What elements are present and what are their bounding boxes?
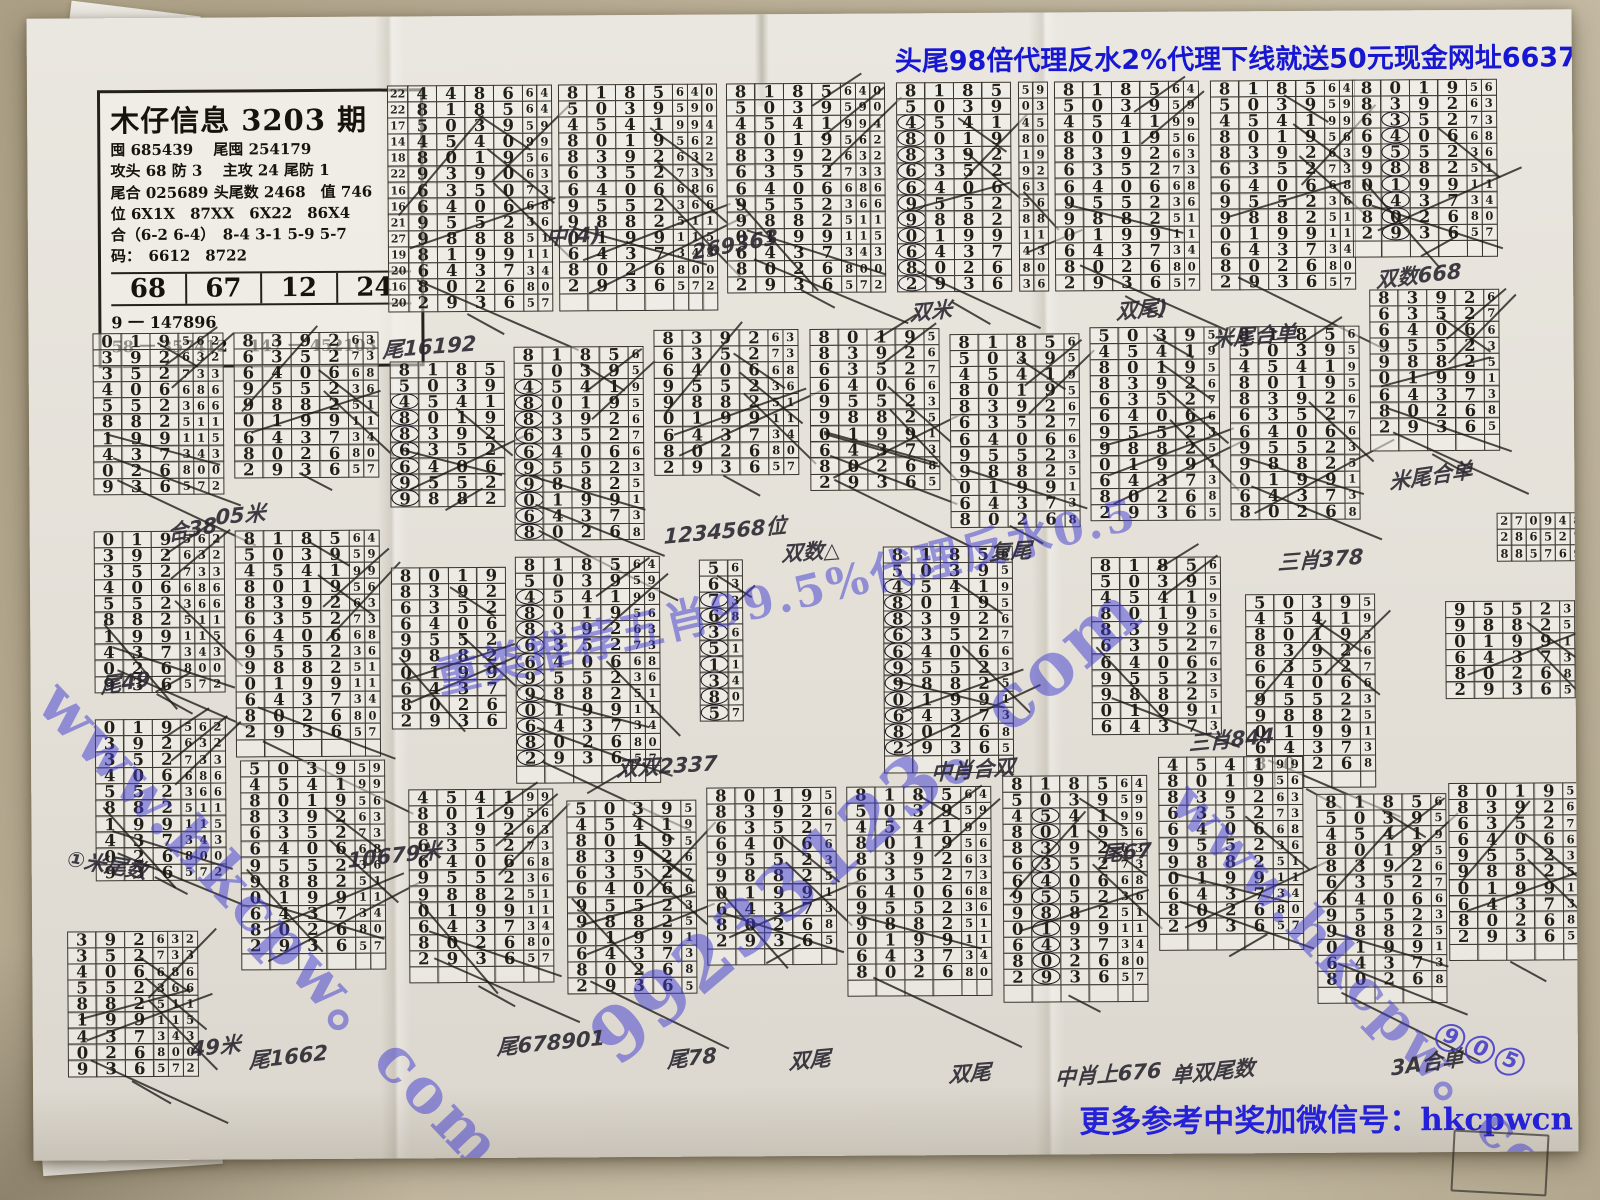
digit-cell: 6 bbox=[644, 604, 660, 622]
digit-cell: 3 bbox=[998, 706, 1014, 724]
digit-cell: 1 bbox=[363, 412, 379, 430]
digit-cell bbox=[1535, 943, 1565, 961]
digit-cell: 3 bbox=[537, 165, 553, 183]
digit-cell: 7 bbox=[538, 949, 554, 967]
digit-cell: 5 bbox=[924, 473, 940, 491]
digit-cell: 1 bbox=[209, 611, 225, 629]
grid-row: 9882 bbox=[391, 491, 506, 508]
handwritten-stamp: 中(4) bbox=[545, 218, 601, 251]
digit-cell: 3 bbox=[681, 944, 697, 962]
digit-cell: 7 bbox=[681, 864, 697, 882]
number-grid-block: 8185650395454198019583926635276406695523… bbox=[1092, 557, 1222, 735]
digit-cell: 0 bbox=[876, 963, 906, 981]
table-pen-marks bbox=[1450, 1130, 1549, 1197]
digit-cell: 5 bbox=[820, 786, 836, 804]
digit-cell: 8 bbox=[644, 652, 660, 670]
digit-cell bbox=[1353, 240, 1383, 258]
digit-cell: 2 bbox=[1303, 754, 1333, 772]
digit-cell: 6 bbox=[1331, 754, 1361, 772]
digit-cell: 9 bbox=[628, 378, 644, 396]
digit-cell: 4 bbox=[1287, 884, 1303, 902]
digit-cell: 3 bbox=[362, 331, 378, 349]
digit-cell: 3 bbox=[1149, 717, 1179, 735]
grid-row bbox=[1450, 944, 1578, 961]
digit-cell: 0 bbox=[1346, 970, 1376, 988]
digit-cell: 3 bbox=[537, 181, 553, 199]
digit-cell: 0 bbox=[702, 260, 718, 278]
grid-row bbox=[848, 980, 992, 997]
digit-cell: 5 bbox=[1064, 462, 1080, 480]
digit-cell: 2 bbox=[559, 277, 589, 295]
digit-cell: 3 bbox=[369, 824, 385, 842]
digit-cell: 1 bbox=[1344, 470, 1360, 488]
digit-cell: 2 bbox=[707, 932, 737, 950]
digit-cell: 2 bbox=[207, 332, 223, 350]
digit-cell: 9 bbox=[644, 588, 660, 606]
digit-cell: 6 bbox=[321, 723, 351, 741]
digit-cell: 3 bbox=[96, 1060, 126, 1078]
digit-cell: 9 bbox=[1381, 224, 1411, 242]
digit-cell: 3 bbox=[573, 749, 603, 767]
digit-cell: 6 bbox=[209, 578, 225, 596]
digit-cell: 3 bbox=[1112, 274, 1142, 292]
digit-cell: 9 bbox=[537, 788, 553, 806]
digit-cell bbox=[1563, 943, 1578, 961]
digit-cell: 3 bbox=[1360, 738, 1376, 756]
digit-cell: 2 bbox=[654, 458, 684, 476]
digit-cell: 8 bbox=[1481, 127, 1497, 145]
digit-cell: 6 bbox=[1430, 793, 1446, 811]
digit-cell: 6 bbox=[1455, 417, 1485, 435]
digit-cell: 6 bbox=[1483, 321, 1499, 339]
digit-cell bbox=[1089, 984, 1119, 1002]
digit-cell: 6 bbox=[727, 559, 743, 577]
digit-cell bbox=[616, 293, 646, 311]
digit-cell: 5 bbox=[1204, 439, 1220, 457]
digit-cell: 0 bbox=[976, 963, 992, 981]
digit-cell: 4 bbox=[1184, 241, 1200, 259]
digit-cell: 5 bbox=[1206, 685, 1222, 703]
digit-cell: 2 bbox=[884, 739, 914, 757]
handwritten-stamp: 复尾 bbox=[989, 534, 1032, 567]
digit-cell: 8 bbox=[1183, 177, 1199, 195]
digit-cell bbox=[876, 979, 906, 997]
grid-row: 293657 bbox=[1212, 274, 1356, 291]
digit-cell: 1 bbox=[210, 799, 226, 817]
handwritten-stamp: 双数△ bbox=[781, 534, 840, 569]
digit-cell: 7 bbox=[997, 626, 1013, 644]
digit-cell: 2 bbox=[476, 489, 506, 507]
digit-cell: 3 bbox=[1204, 423, 1220, 441]
grid-row: 57 bbox=[701, 705, 744, 721]
grid-row: 293657 bbox=[655, 459, 799, 476]
digit-cell: 2 bbox=[241, 937, 271, 955]
digit-cell: 1 bbox=[728, 656, 744, 674]
digit-cell: 8 bbox=[847, 963, 877, 981]
digit-cell: 2 bbox=[391, 712, 421, 730]
info-line: 码： 6612 8722 bbox=[111, 245, 411, 268]
digit-cell: 6 bbox=[182, 963, 198, 981]
info-number: 67 bbox=[187, 273, 263, 303]
grid-row: 2936 bbox=[393, 713, 508, 730]
digit-cell: 3 bbox=[364, 594, 380, 612]
digit-cell bbox=[321, 739, 351, 757]
digit-cell: 6 bbox=[153, 863, 183, 881]
digit-cell: 20 bbox=[388, 262, 410, 280]
digit-cell: 6 bbox=[1531, 681, 1561, 699]
digit-cell: 8 bbox=[1287, 820, 1303, 838]
digit-cell: 1 bbox=[628, 491, 644, 509]
digit-cell: 3 bbox=[293, 723, 323, 741]
digit-cell: 9 bbox=[1131, 807, 1147, 825]
digit-cell: 2 bbox=[209, 718, 225, 736]
info-line: 囤 685439 尾囤 254179 bbox=[110, 138, 410, 161]
digit-cell: 6 bbox=[362, 380, 378, 398]
digit-cell: 2 bbox=[869, 130, 885, 148]
grid-row: 2936 bbox=[898, 276, 1013, 293]
digit-cell: 2 bbox=[182, 930, 198, 948]
handwritten-stamp: 米尾合单 bbox=[1212, 317, 1297, 354]
digit-cell bbox=[1398, 434, 1428, 452]
digit-cell: 5 bbox=[1430, 809, 1446, 827]
digit-cell: 5 bbox=[997, 594, 1013, 612]
digit-cell: 3 bbox=[298, 937, 328, 955]
digit-cell: 6 bbox=[681, 880, 697, 898]
digit-cell: 1 bbox=[644, 700, 660, 718]
digit-cell: 3 bbox=[209, 643, 225, 661]
digit-cell: 1 bbox=[208, 413, 224, 431]
handwritten-stamp: 尾67 bbox=[1101, 834, 1152, 868]
digit-cell: 1 bbox=[1287, 868, 1303, 886]
number-grid-block: 8019583926635276406695523988250199164373… bbox=[1449, 783, 1578, 961]
digit-cell: 5 bbox=[821, 867, 837, 885]
digit-cell bbox=[1245, 933, 1275, 951]
digit-cell: 7 bbox=[628, 426, 644, 444]
digit-cell: 9 bbox=[1119, 504, 1149, 522]
grid-row: 29365 bbox=[568, 978, 697, 995]
digit-cell: 6 bbox=[1481, 78, 1497, 96]
digit-cell: 7 bbox=[1340, 273, 1356, 291]
digit-cell: 3 bbox=[1064, 446, 1080, 464]
digit-cell: 9 bbox=[644, 572, 660, 590]
digit-cell: 8 bbox=[998, 723, 1014, 741]
digit-cell: 8 bbox=[782, 361, 798, 379]
digit-cell: 2 bbox=[702, 148, 718, 166]
number-grid-block: 8185645039594541998019568392636352736406… bbox=[516, 557, 661, 783]
digit-cell: 27 bbox=[387, 230, 409, 248]
digit-cell: 4 bbox=[975, 785, 991, 803]
digit-cell: 2 bbox=[409, 950, 439, 968]
digit-cell: 2 bbox=[1055, 274, 1085, 292]
number-grid-block: 56637368365111348057 bbox=[700, 560, 744, 721]
digit-cell: 9 bbox=[1131, 791, 1147, 809]
digit-cell: 19 bbox=[388, 246, 410, 264]
digit-cell bbox=[538, 965, 554, 983]
digit-cell: 6 bbox=[645, 277, 675, 295]
number-grid-block: 8185645039594541998019568392636352736406… bbox=[1055, 82, 1200, 292]
digit-cell: 4 bbox=[1481, 191, 1497, 209]
digit-cell: 8 bbox=[1431, 970, 1447, 988]
digit-cell: 3 bbox=[1204, 471, 1220, 489]
digit-cell: 8 bbox=[950, 511, 980, 529]
number-grid-block: 8185650395454198019583926635276406695523… bbox=[1230, 327, 1360, 521]
digit-cell: 0 bbox=[543, 523, 573, 541]
digit-cell: 9 bbox=[997, 578, 1013, 596]
pen-stroke bbox=[952, 302, 991, 326]
digit-cell: 2 bbox=[904, 963, 934, 981]
digit-cell: 3 bbox=[616, 277, 646, 295]
digit-cell: 6 bbox=[1344, 390, 1360, 408]
digit-cell: 3 bbox=[1481, 111, 1497, 129]
digit-cell bbox=[1132, 984, 1148, 1002]
digit-cell: 0 bbox=[645, 733, 661, 751]
digit-cell bbox=[1506, 943, 1536, 961]
digit-cell: 3 bbox=[681, 896, 697, 914]
digit-cell bbox=[264, 739, 294, 757]
digit-cell bbox=[293, 739, 323, 757]
handwritten-stamp: 米尾合单 bbox=[1389, 454, 1473, 496]
digit-cell: 9 bbox=[264, 723, 294, 741]
digit-cell: 6 bbox=[702, 180, 718, 198]
digit-cell: 3 bbox=[975, 866, 991, 884]
digit-cell: 16 bbox=[387, 198, 409, 216]
digit-cell bbox=[516, 766, 546, 784]
digit-cell bbox=[821, 947, 837, 965]
digit-cell: 6 bbox=[537, 149, 553, 167]
digit-cell: 4 bbox=[364, 690, 380, 708]
number-grid-block: 3926323527334066865523668825111991154373… bbox=[68, 932, 199, 1078]
digit-cell: 2 bbox=[1449, 927, 1479, 945]
digit-cell: 2 bbox=[727, 276, 757, 294]
handwritten-stamp: 尾678901 bbox=[497, 1022, 606, 1062]
number-grid-block: 8392636352736406689552369882510199116437… bbox=[234, 333, 379, 479]
digit-cell: 3 bbox=[1563, 846, 1579, 864]
digit-cell: 3 bbox=[867, 473, 897, 491]
digit-cell: 7 bbox=[1132, 968, 1148, 986]
digit-cell bbox=[735, 948, 765, 966]
digit-cell: 2 bbox=[516, 749, 546, 767]
digit-cell bbox=[1381, 240, 1411, 258]
digit-cell: 6 bbox=[1562, 798, 1578, 816]
digit-cell: 8 bbox=[1345, 502, 1361, 520]
digit-cell: 0 bbox=[1340, 256, 1356, 274]
digit-cell: 0 bbox=[1481, 207, 1497, 225]
info-footer: 9 一 147896 bbox=[111, 307, 411, 333]
info-number-row: 68 67 12 24 bbox=[111, 270, 411, 306]
digit-cell bbox=[1456, 433, 1486, 451]
digit-cell: 3 bbox=[782, 345, 798, 363]
digit-cell bbox=[327, 953, 357, 971]
digit-cell: 9 bbox=[437, 950, 467, 968]
digit-cell: 2 bbox=[1033, 162, 1049, 180]
digit-cell: 6 bbox=[1316, 502, 1346, 520]
digit-cell: 9 bbox=[1064, 365, 1080, 383]
digit-cell: 6 bbox=[1287, 836, 1303, 854]
digit-cell: 3 bbox=[924, 441, 940, 459]
info-line: 攻头 68 防 3 主攻 24 尾防 1 bbox=[110, 160, 410, 183]
digit-cell: 6 bbox=[364, 642, 380, 660]
digit-cell: 1 bbox=[369, 888, 385, 906]
number-grid-block: 0195623926323527334066865523668825111991… bbox=[93, 334, 224, 496]
digit-cell: 8 bbox=[1230, 503, 1260, 521]
digit-cell: 6 bbox=[1481, 143, 1497, 161]
digit-cell bbox=[1438, 240, 1468, 258]
number-grid-block: 8019568392636352736406689552369882510199… bbox=[1353, 80, 1498, 258]
digit-cell: 0 bbox=[728, 688, 744, 706]
digit-cell: 6 bbox=[1483, 288, 1499, 306]
digit-cell: 6 bbox=[1036, 510, 1066, 528]
digit-cell bbox=[365, 739, 381, 757]
digit-cell bbox=[1484, 433, 1500, 451]
digit-cell: 9 bbox=[67, 1060, 97, 1078]
digit-cell: 5 bbox=[1360, 706, 1376, 724]
digit-cell: 1 bbox=[1033, 226, 1049, 244]
digit-cell: 7 bbox=[1205, 637, 1221, 655]
digit-cell: 7 bbox=[1360, 658, 1376, 676]
digit-cell bbox=[1374, 986, 1404, 1004]
digit-cell: 7 bbox=[1204, 390, 1220, 408]
digit-cell: 6 bbox=[1205, 556, 1221, 574]
digit-cell bbox=[298, 953, 328, 971]
digit-cell: 1 bbox=[821, 883, 837, 901]
digit-cell: 7 bbox=[924, 360, 940, 378]
digit-cell: 5 bbox=[1064, 381, 1080, 399]
digit-cell: 0 bbox=[701, 99, 717, 117]
digit-cell: 2 bbox=[208, 477, 224, 495]
handwritten-stamp: 49米 bbox=[191, 1028, 241, 1064]
digit-cell: 5 bbox=[681, 831, 697, 849]
digit-cell: 4 bbox=[644, 717, 660, 735]
digit-cell: 6 bbox=[320, 460, 350, 478]
digit-cell: 3 bbox=[1033, 178, 1049, 196]
digit-cell: 6 bbox=[1438, 224, 1468, 242]
digit-cell: 8 bbox=[821, 915, 837, 933]
digit-cell: 1 bbox=[369, 872, 385, 890]
digit-cell: 1 bbox=[976, 914, 992, 932]
digit-cell: 3 bbox=[1216, 917, 1246, 935]
digit-cell: 6 bbox=[1033, 274, 1049, 292]
digit-cell: 9 bbox=[364, 561, 380, 579]
digit-cell: 5 bbox=[681, 976, 697, 994]
digit-cell: 5 bbox=[681, 912, 697, 930]
digit-cell: 8 bbox=[537, 853, 553, 871]
digit-cell: 8 bbox=[727, 607, 743, 625]
grid-row: 29365 bbox=[811, 474, 940, 491]
digit-cell: 9 bbox=[596, 977, 626, 995]
digit-cell: 0 bbox=[869, 82, 885, 100]
digit-cell: 8 bbox=[447, 489, 477, 507]
digit-cell: 1 bbox=[681, 928, 697, 946]
digit-cell: 2 bbox=[1007, 510, 1037, 528]
digit-cell: 3 bbox=[784, 276, 814, 294]
digit-cell: 6 bbox=[727, 623, 743, 641]
digit-cell: 5 bbox=[998, 674, 1014, 692]
digit-cell: 6 bbox=[1563, 830, 1579, 848]
digit-cell: 2 bbox=[1090, 504, 1120, 522]
digit-cell: 7 bbox=[1483, 304, 1499, 322]
digit-cell: 5 bbox=[1032, 113, 1048, 131]
digit-cell: 4 bbox=[701, 115, 717, 133]
digit-cell: 9 bbox=[363, 545, 379, 563]
digit-cell: 5 bbox=[1563, 927, 1578, 945]
handwritten-stamp: 尾49 bbox=[100, 663, 151, 700]
digit-cell: 1 bbox=[998, 690, 1014, 708]
digit-cell: 6 bbox=[1204, 374, 1220, 392]
digit-cell: 3 bbox=[1344, 438, 1360, 456]
digit-cell: 6 bbox=[537, 869, 553, 887]
digit-cell bbox=[1449, 944, 1479, 962]
grid-row: 293657 bbox=[235, 461, 379, 478]
number-grid-block: 4541998019568392636352736406689552369882… bbox=[1159, 757, 1304, 951]
digit-cell: 2 bbox=[1003, 969, 1033, 987]
digit-cell: 7 bbox=[1184, 273, 1200, 291]
digit-cell: 6 bbox=[782, 377, 798, 395]
digit-cell: 6 bbox=[182, 979, 198, 997]
digit-cell: 4 bbox=[536, 100, 552, 118]
digit-cell: 3 bbox=[1060, 968, 1090, 986]
number-grid-block: 8185640503959045419948019562839263263527… bbox=[559, 85, 719, 311]
info-line: 合（6-2 6-4） 8-4 3-1 5-9 5-7 bbox=[111, 224, 411, 247]
digit-cell: 2 bbox=[210, 734, 226, 752]
digit-cell: 4 bbox=[1183, 80, 1199, 98]
number-grid-block: 270948028652768857690 bbox=[1498, 513, 1579, 562]
digit-cell: 2 bbox=[870, 147, 886, 165]
digit-cell: 8 bbox=[1033, 210, 1049, 228]
digit-cell: 7 bbox=[537, 294, 553, 312]
info-line: 尾合 025689 头尾数 2468 值 746 bbox=[111, 181, 411, 204]
digit-cell: 3 bbox=[954, 275, 984, 293]
grid-row bbox=[237, 740, 381, 757]
digit-cell: 3 bbox=[537, 820, 553, 838]
info-number: 12 bbox=[262, 273, 338, 303]
digit-cell: 5 bbox=[1431, 922, 1447, 940]
digit-cell: 3 bbox=[364, 610, 380, 628]
digit-cell: 9 bbox=[1205, 588, 1221, 606]
digit-cell: 5 bbox=[1204, 358, 1220, 376]
digit-cell bbox=[1288, 933, 1304, 951]
digit-cell: 2 bbox=[207, 348, 223, 366]
handwritten-stamp: 双尾 bbox=[789, 1042, 831, 1076]
digit-cell: 3 bbox=[1431, 905, 1447, 923]
digit-cell: 6 bbox=[644, 668, 660, 686]
digit-cell: 9 bbox=[1187, 917, 1217, 935]
digit-cell: 3 bbox=[1344, 486, 1360, 504]
info-box: 木仔信息 3203 期 囤 685439 尾囤 254179 攻头 68 防 3… bbox=[97, 88, 425, 368]
grid-row: 80268 bbox=[1232, 504, 1361, 521]
digit-cell: 0 bbox=[370, 920, 386, 938]
grid-row bbox=[708, 949, 837, 966]
digit-cell: 1 bbox=[538, 901, 554, 919]
digit-cell: 9 bbox=[420, 712, 450, 730]
digit-cell: 3 bbox=[1183, 161, 1199, 179]
digit-cell: 7 bbox=[1562, 814, 1578, 832]
digit-cell: 5 bbox=[1344, 454, 1360, 472]
digit-cell: 3 bbox=[1431, 954, 1447, 972]
digit-cell: 6 bbox=[983, 275, 1013, 293]
digit-cell bbox=[707, 948, 737, 966]
digit-cell: 3 bbox=[628, 458, 644, 476]
digit-cell: 8 bbox=[1563, 911, 1578, 929]
digit-cell: 0 bbox=[537, 277, 553, 295]
digit-cell: 3 bbox=[1287, 788, 1303, 806]
number-grid-block: 8185650395454198019583926635276406695523… bbox=[950, 334, 1080, 528]
digit-cell bbox=[1346, 986, 1376, 1004]
digit-cell bbox=[793, 948, 823, 966]
digit-cell: 6 bbox=[150, 477, 180, 495]
digit-cell: 6 bbox=[1183, 193, 1199, 211]
digit-cell: 2 bbox=[1352, 224, 1382, 242]
grid-row: 80268 bbox=[952, 512, 1081, 529]
